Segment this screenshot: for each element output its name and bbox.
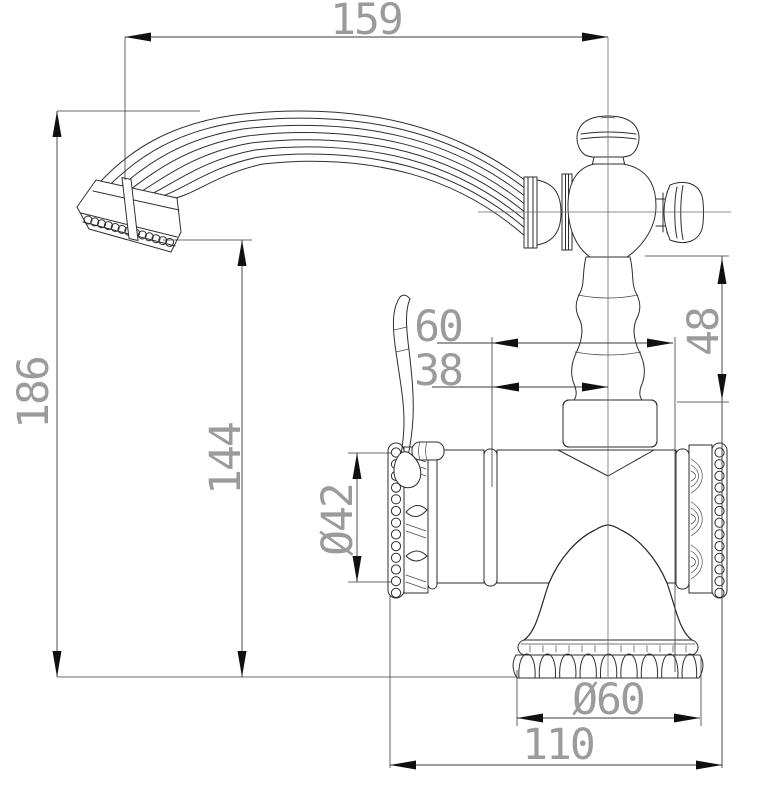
technical-drawing-canvas: 159 186 144 Ø42 60 38 48 Ø60 110 <box>0 0 782 800</box>
dim-text-neck-height: 48 <box>679 308 729 356</box>
bonnet-nut <box>563 400 657 447</box>
dim-text-offset-lower: 38 <box>414 346 462 396</box>
dim-text-offset-upper: 60 <box>414 302 462 352</box>
dim-text-base-span: 110 <box>522 720 594 770</box>
dim-text-overall-height: 186 <box>9 357 59 429</box>
dim-text-spout-reach: 159 <box>330 0 402 45</box>
right-bead-ring <box>712 443 727 598</box>
left-knurl-section <box>437 450 484 583</box>
right-end-cap <box>689 445 712 593</box>
left-collar-ring <box>428 449 437 589</box>
side-handle-knob <box>656 182 704 242</box>
valve-body <box>568 164 656 257</box>
dim-text-spout-outlet-height: 144 <box>201 423 251 495</box>
right-collar-ring <box>676 449 689 589</box>
spout-aerator <box>77 178 181 253</box>
mid-collar-ring <box>484 449 497 586</box>
faucet-outline <box>77 111 727 678</box>
dim-text-body-diameter: Ø42 <box>313 484 363 556</box>
faucet-dimension-drawing: 159 186 144 Ø42 60 38 48 Ø60 110 <box>0 0 782 800</box>
dim-text-base-diameter: Ø60 <box>572 675 644 725</box>
